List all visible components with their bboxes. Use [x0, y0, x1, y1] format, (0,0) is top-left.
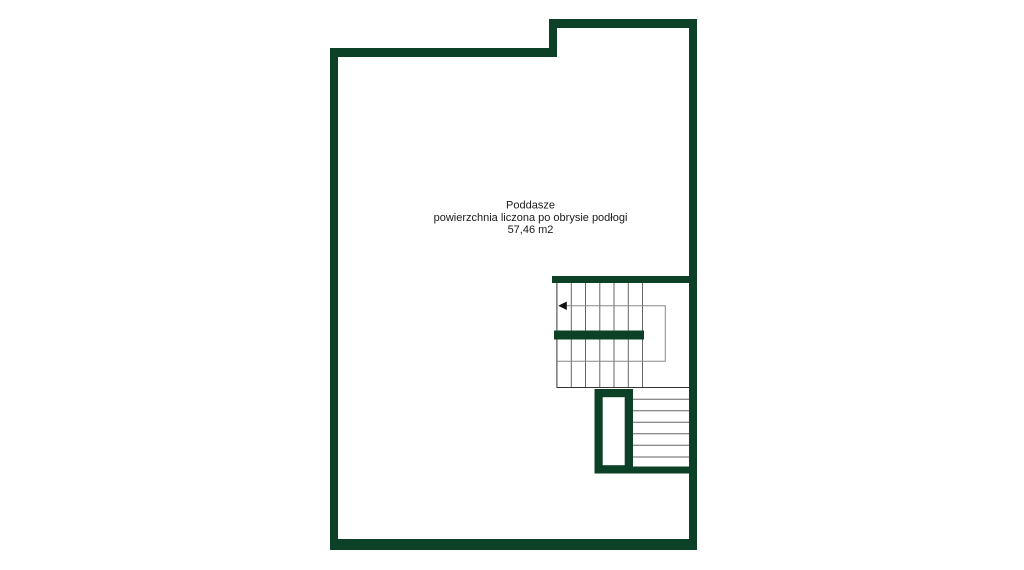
svg-text:57,46 m2: 57,46 m2 [508, 224, 554, 236]
svg-text:Poddasze: Poddasze [506, 200, 555, 212]
svg-text:powierzchnia liczona po obrysi: powierzchnia liczona po obrysie podłogi [434, 212, 628, 224]
